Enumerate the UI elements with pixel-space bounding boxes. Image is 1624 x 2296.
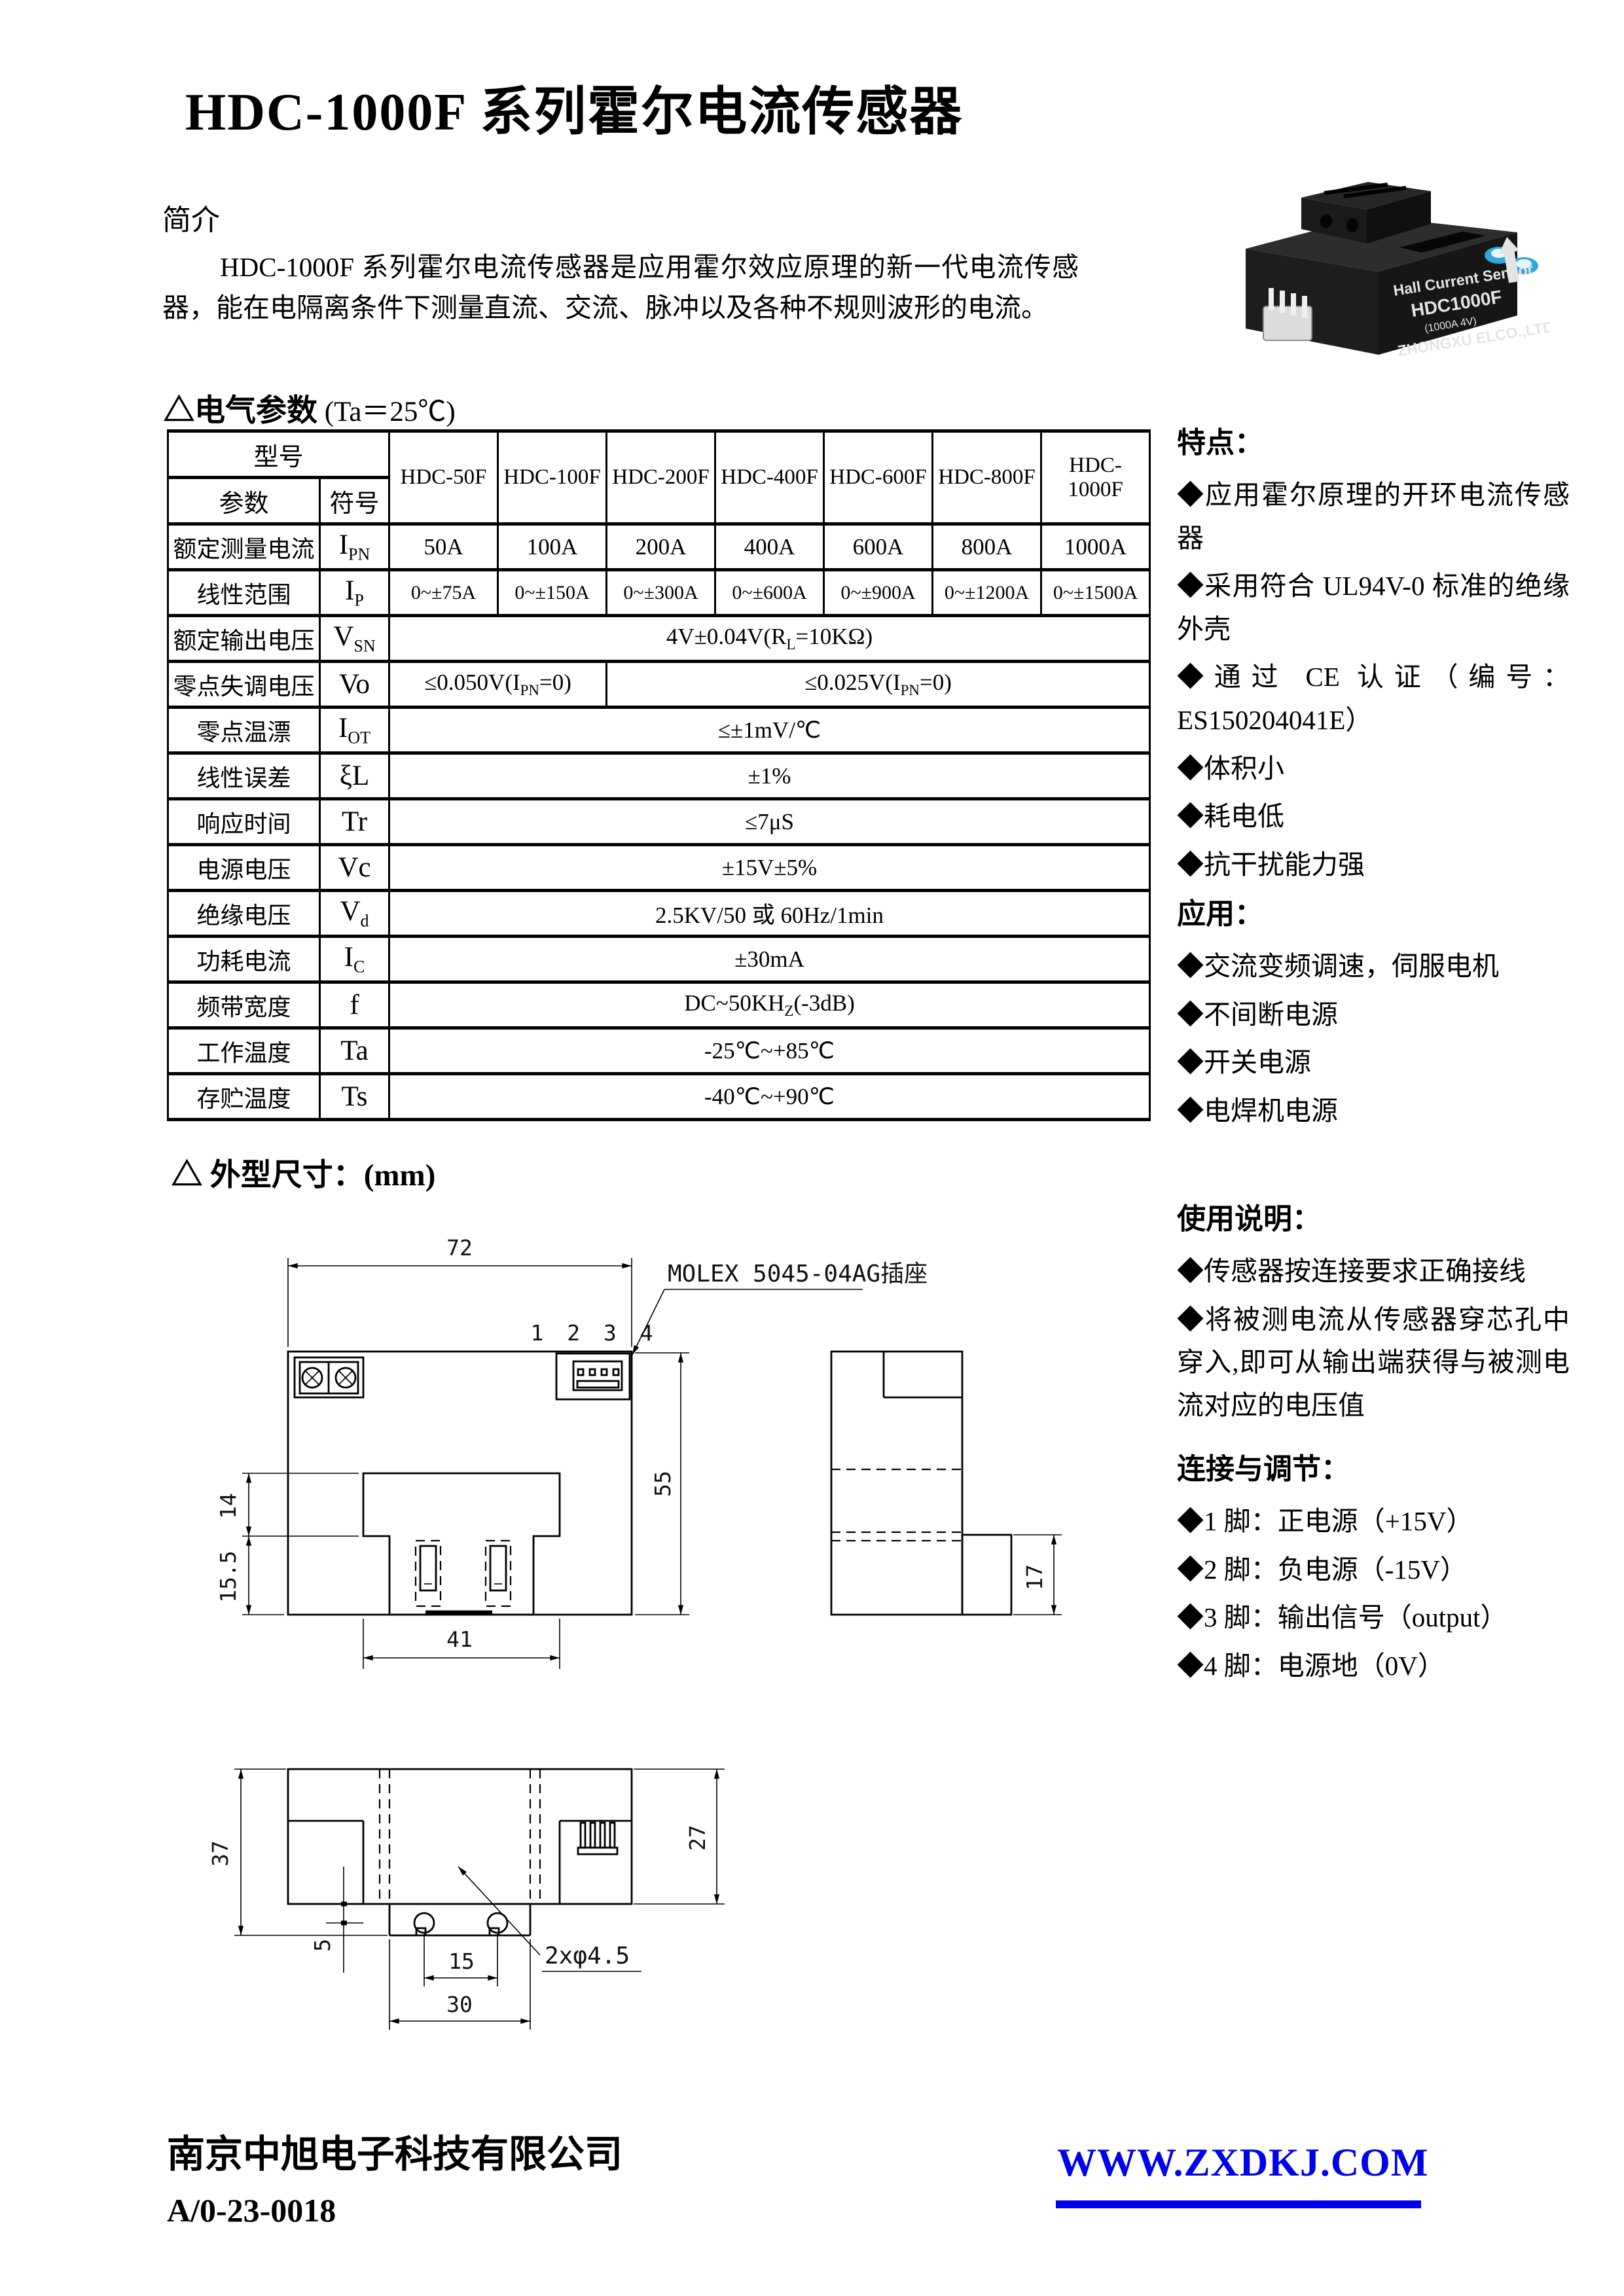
feature-item: ◆体积小 — [1177, 747, 1570, 791]
dim-height-label: 55 — [650, 1471, 676, 1497]
connection-section: 连接与调节： ◆1 脚：正电源（+15V） ◆2 脚：负电源（-15V） ◆3 … — [1177, 1445, 1570, 1693]
table-row: 电源电压 Vc ±15V±5% — [168, 845, 1150, 891]
footer-website-underline — [1056, 2200, 1421, 2208]
dim-41-label: 41 — [446, 1626, 473, 1652]
dim-17-label: 17 — [1022, 1564, 1047, 1590]
param-value: 0~±1500A — [1041, 570, 1150, 616]
param-value: 4V±0.04V(RL=10KΩ) — [389, 616, 1150, 662]
features-heading: 特点： — [1177, 419, 1570, 461]
param-label: 响应时间 — [168, 799, 320, 845]
model-header: HDC-400F — [715, 431, 824, 524]
param-label: 功耗电流 — [168, 937, 320, 982]
elec-params-table: 型号 HDC-50F HDC-100F HDC-200F HDC-400F HD… — [167, 429, 1151, 1121]
sensor-body-illustration: Hall Current Sensor HDC1000F (1000A 4V) … — [1246, 182, 1550, 359]
intro-paragraph: HDC-1000F 系列霍尔电流传感器是应用霍尔效应原理的新一代电流传感器，能在… — [162, 247, 1079, 328]
dims-section-heading: △ 外型尺寸：(mm) — [171, 1149, 435, 1194]
table-row: 零点温漂 IOT ≤±1mV/℃ — [168, 708, 1150, 753]
param-symbol: Vd — [320, 891, 389, 937]
param-value: 50A — [389, 524, 498, 570]
model-header: HDC-50F — [389, 431, 498, 524]
param-label: 绝缘电压 — [168, 891, 320, 937]
pin-item: ◆4 脚：电源地（0V） — [1177, 1645, 1570, 1688]
param-label: 电源电压 — [168, 845, 320, 891]
table-row: 功耗电流 IC ±30mA — [168, 937, 1150, 982]
dim-30-label: 30 — [446, 1992, 473, 2017]
model-header: HDC-100F — [498, 431, 607, 524]
param-symbol: Ta — [320, 1028, 389, 1074]
param-symbol: IP — [320, 570, 389, 616]
application-item: ◆电焊机电源 — [1177, 1090, 1570, 1133]
connection-heading: 连接与调节： — [1177, 1445, 1570, 1487]
model-header: HDC-600F — [824, 431, 933, 524]
dim-27-label: 27 — [685, 1825, 710, 1851]
front-view: 1 2 3 4 72 55 14 — [215, 1235, 928, 1669]
table-row: 额定测量电流 IPN 50A 100A 200A 400A 600A 800A … — [168, 524, 1150, 570]
dim-width-label: 72 — [446, 1235, 473, 1261]
param-value: DC~50KHZ(-3dB) — [389, 982, 1150, 1028]
bottom-view: 37 27 5 15 30 2xφ4.5 — [208, 1769, 725, 2030]
model-header: HDC-200F — [607, 431, 715, 524]
param-symbol: Tr — [320, 799, 389, 845]
footer-website-link[interactable]: WWW.ZXDKJ.COM — [1057, 2140, 1428, 2185]
table-header-row-model: 型号 HDC-50F HDC-100F HDC-200F HDC-400F HD… — [168, 431, 1150, 478]
param-symbol: VSN — [320, 616, 389, 662]
dimension-drawing: 1 2 3 4 72 55 14 — [164, 1217, 1165, 2042]
pin-item: ◆2 脚：负电源（-15V） — [1177, 1549, 1570, 1592]
param-value: ±15V±5% — [389, 845, 1150, 891]
param-label: 存贮温度 — [168, 1074, 320, 1120]
feature-item: ◆应用霍尔原理的开环电流传感器 — [1177, 474, 1570, 560]
table-row: 频带宽度 f DC~50KHZ(-3dB) — [168, 982, 1150, 1028]
param-symbol: ξL — [320, 753, 389, 799]
elec-heading-condition: (Ta＝25℃) — [317, 397, 456, 427]
param-label: 频带宽度 — [168, 982, 320, 1028]
param-value: ±1% — [389, 753, 1150, 799]
corner-param-label: 参数 — [168, 478, 320, 524]
param-value: 800A — [933, 524, 1041, 570]
param-label: 零点失调电压 — [168, 662, 320, 708]
usage-item: ◆传感器按连接要求正确接线 — [1177, 1250, 1570, 1293]
page-title: HDC-1000F 系列霍尔电流传感器 — [185, 69, 963, 145]
dim-14-label: 14 — [215, 1493, 241, 1519]
intro-heading: 简介 — [162, 196, 220, 238]
param-symbol: Vo — [320, 662, 389, 708]
param-value: 0~±600A — [715, 570, 824, 616]
param-label: 额定输出电压 — [168, 616, 320, 662]
application-item: ◆交流变频调速，伺服电机 — [1177, 945, 1570, 988]
corner-symbol-label: 符号 — [320, 478, 389, 524]
usage-item: ◆将被测电流从传感器穿芯孔中穿入,即可从输出端获得与被测电流对应的电压值 — [1177, 1299, 1570, 1427]
param-symbol: IOT — [320, 708, 389, 753]
applications-heading: 应用： — [1177, 890, 1570, 932]
param-value: 1000A — [1041, 524, 1150, 570]
param-value: 400A — [715, 524, 824, 570]
dim-155-label: 15.5 — [215, 1551, 241, 1602]
feature-item: ◆通过 CE 认证（编号：ES150204041E） — [1177, 656, 1570, 742]
applications-section: 应用： ◆交流变频调速，伺服电机 ◆不间断电源 ◆开关电源 ◆电焊机电源 — [1177, 890, 1570, 1138]
param-value: ≤±1mV/℃ — [389, 708, 1150, 753]
model-header: HDC-1000F — [1041, 431, 1150, 524]
elec-heading-text: △电气参数 — [164, 394, 317, 428]
param-symbol: Vc — [320, 845, 389, 891]
features-section: 特点： ◆应用霍尔原理的开环电流传感器 ◆采用符合 UL94V-0 标准的绝缘外… — [1177, 419, 1570, 891]
param-symbol: Ts — [320, 1074, 389, 1120]
dim-15-label: 15 — [448, 1948, 475, 1974]
table-row: 绝缘电压 Vd 2.5KV/50 或 60Hz/1min — [168, 891, 1150, 937]
product-photo: Hall Current Sensor HDC1000F (1000A 4V) … — [1203, 157, 1550, 373]
param-value: 0~±150A — [498, 570, 607, 616]
param-value: 600A — [824, 524, 933, 570]
hole-callout-label: 2xφ4.5 — [545, 1943, 630, 1969]
param-symbol: IC — [320, 937, 389, 982]
param-symbol: IPN — [320, 524, 389, 570]
pin-item: ◆1 脚：正电源（+15V） — [1177, 1500, 1570, 1543]
param-label: 额定测量电流 — [168, 524, 320, 570]
param-value: 200A — [607, 524, 715, 570]
feature-item: ◆耗电低 — [1177, 795, 1570, 838]
table-row: 线性误差 ξL ±1% — [168, 753, 1150, 799]
param-value: 0~±900A — [824, 570, 933, 616]
param-value: 2.5KV/50 或 60Hz/1min — [389, 891, 1150, 937]
param-value: ≤7μS — [389, 799, 1150, 845]
feature-item: ◆抗干扰能力强 — [1177, 844, 1570, 887]
param-value: 0~±300A — [607, 570, 715, 616]
usage-heading: 使用说明： — [1177, 1195, 1570, 1237]
footer-company-name: 南京中旭电子科技有限公司 — [167, 2123, 623, 2178]
table-row: 零点失调电压 Vo ≤0.050V(IPN=0) ≤0.025V(IPN=0) — [168, 662, 1150, 708]
param-value: 0~±75A — [389, 570, 498, 616]
corner-model-label: 型号 — [168, 431, 389, 478]
param-value: -40℃~+90℃ — [389, 1074, 1150, 1120]
param-value: 0~±1200A — [933, 570, 1041, 616]
table-row: 响应时间 Tr ≤7μS — [168, 799, 1150, 845]
model-header: HDC-800F — [933, 431, 1041, 524]
param-label: 工作温度 — [168, 1028, 320, 1074]
dim-5-label: 5 — [310, 1939, 335, 1952]
table-row: 存贮温度 Ts -40℃~+90℃ — [168, 1074, 1150, 1120]
datasheet-page: HDC-1000F 系列霍尔电流传感器 简介 HDC-1000F 系列霍尔电流传… — [0, 0, 1624, 2296]
param-value: 100A — [498, 524, 607, 570]
param-label: 线性误差 — [168, 753, 320, 799]
pin-item: ◆3 脚：输出信号（output） — [1177, 1596, 1570, 1640]
application-item: ◆开关电源 — [1177, 1041, 1570, 1085]
elec-section-heading: △电气参数 (Ta＝25℃) — [164, 385, 456, 430]
table-row: 额定输出电压 VSN 4V±0.04V(RL=10KΩ) — [168, 616, 1150, 662]
param-value: ≤0.025V(IPN=0) — [607, 662, 1150, 708]
footer-doc-number: A/0-23-0018 — [167, 2191, 336, 2229]
param-label: 零点温漂 — [168, 708, 320, 753]
param-value: ≤0.050V(IPN=0) — [389, 662, 607, 708]
param-value: -25℃~+85℃ — [389, 1028, 1150, 1074]
param-symbol: f — [320, 982, 389, 1028]
feature-item: ◆采用符合 UL94V-0 标准的绝缘外壳 — [1177, 565, 1570, 651]
application-item: ◆不间断电源 — [1177, 994, 1570, 1037]
dim-37-label: 37 — [208, 1840, 233, 1867]
param-value: ±30mA — [389, 937, 1150, 982]
usage-section: 使用说明： ◆传感器按连接要求正确接线 ◆将被测电流从传感器穿芯孔中穿入,即可从… — [1177, 1195, 1570, 1432]
param-label: 线性范围 — [168, 570, 320, 616]
molex-label: MOLEX 5045-04AG插座 — [668, 1261, 928, 1287]
side-view: 17 — [831, 1352, 1062, 1615]
table-row: 线性范围 IP 0~±75A 0~±150A 0~±300A 0~±600A 0… — [168, 570, 1150, 616]
table-row: 工作温度 Ta -25℃~+85℃ — [168, 1028, 1150, 1074]
